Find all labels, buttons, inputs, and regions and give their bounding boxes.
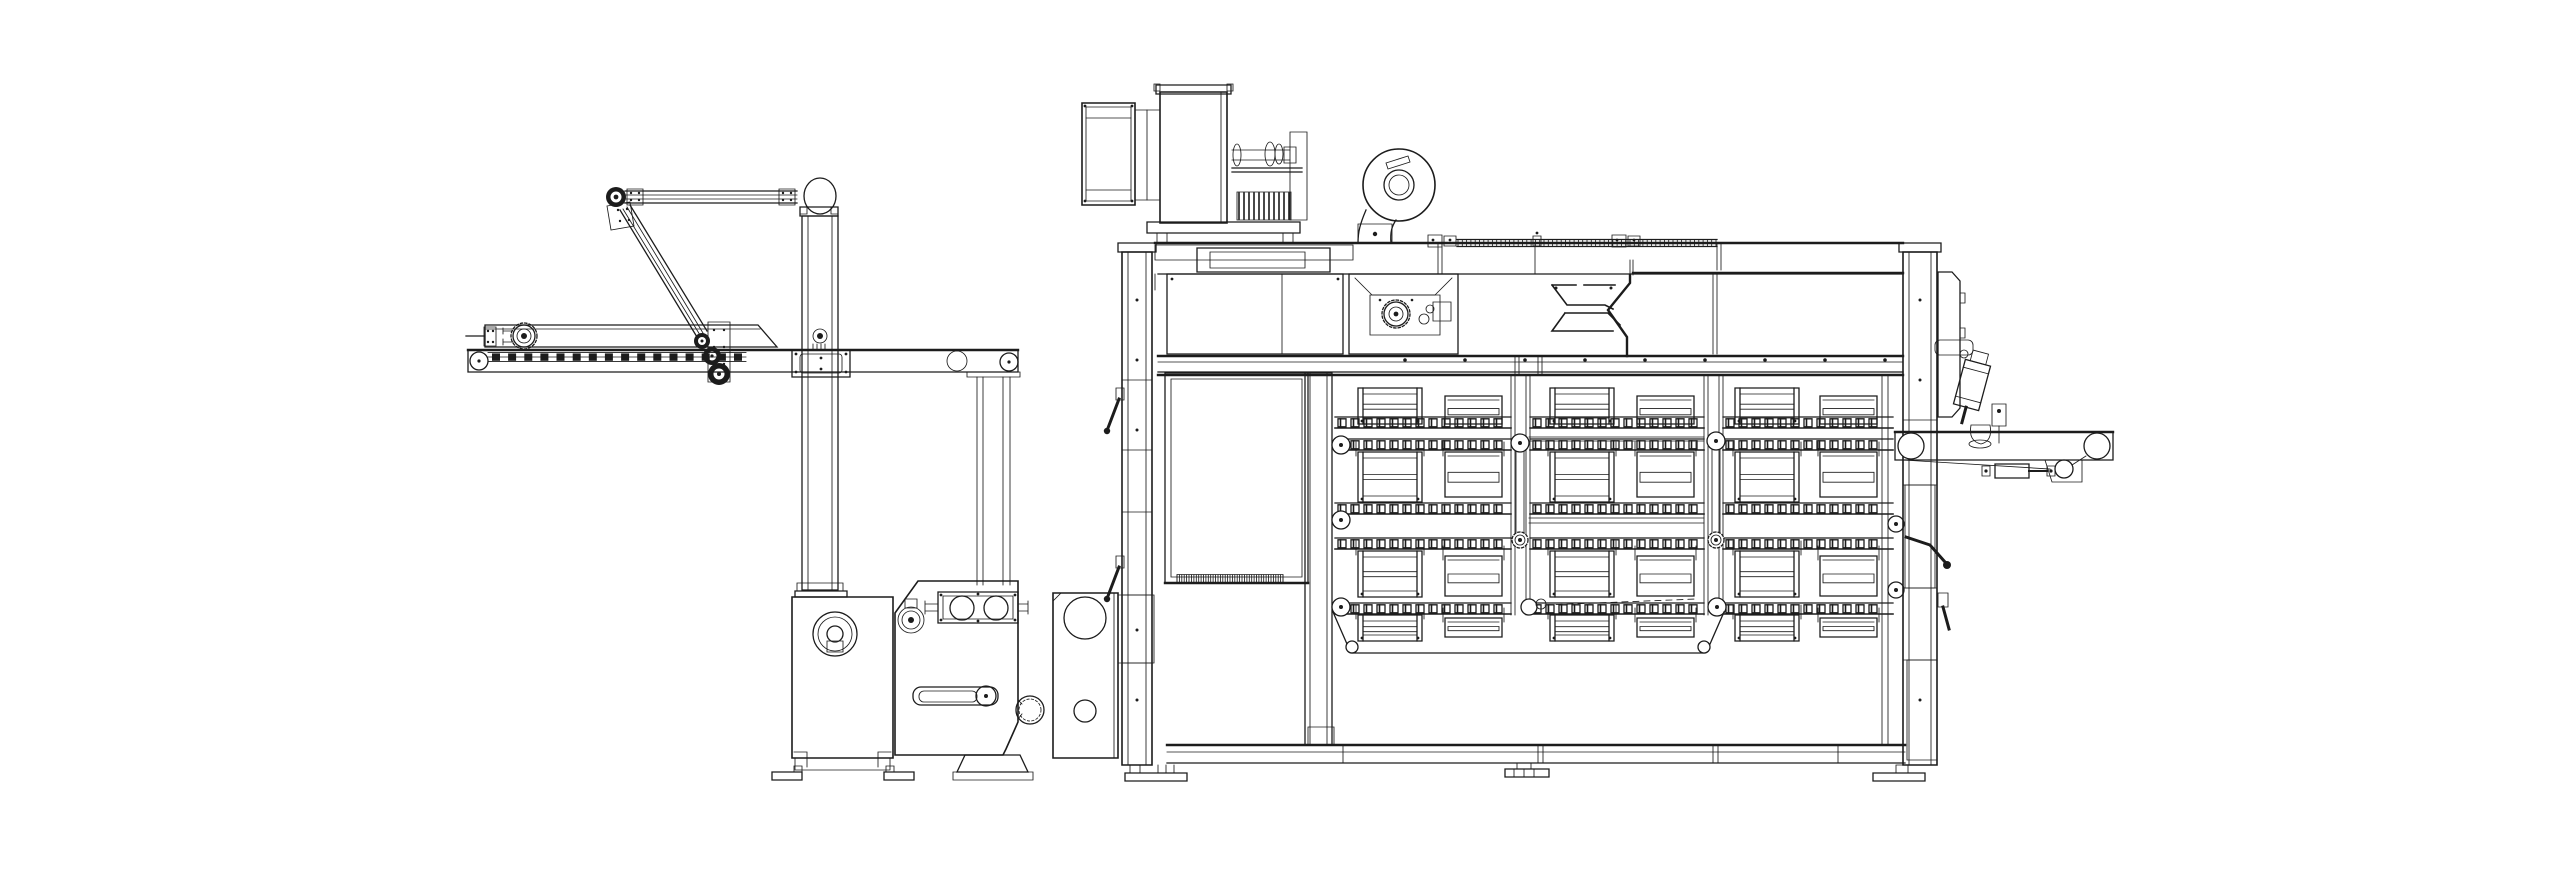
proximity-sensor: [1992, 404, 2006, 443]
tray-rack: [1332, 375, 1904, 745]
gearmotor-bay: [1349, 274, 1458, 354]
press-cylinder: [1949, 349, 1993, 426]
side-panel: [1938, 272, 1960, 417]
outfeed-unit: [1895, 272, 2113, 482]
tray-proofer-cabinet: [1082, 84, 1951, 781]
low-pan-tray: [1445, 556, 1502, 596]
end-plate: [1290, 132, 1307, 220]
drawing-canvas: Monochrome technical line drawing (side …: [0, 0, 2560, 881]
drive-shaft-assembly: [1232, 142, 1302, 172]
clamp-lever: [1906, 537, 1951, 569]
infeed-elevator-unit: [466, 178, 1118, 780]
upper-chamber: [1167, 274, 1343, 354]
leveling-foot: [1125, 773, 1187, 781]
gearbox-cabinet: [895, 581, 1044, 780]
tall-rack-tray: [1358, 551, 1422, 597]
rack-post: [1511, 375, 1530, 615]
tall-rack-tray: [1550, 615, 1614, 641]
column-base-flange: [795, 591, 847, 597]
fan-vane: [1386, 156, 1410, 169]
leveling-foot: [1873, 773, 1925, 781]
cylinder-bracket: [1935, 340, 1973, 355]
leveling-foot: [1505, 769, 1549, 777]
chain-bars: [1516, 437, 1720, 605]
leveling-foot: [884, 772, 914, 780]
plate-bore: [1074, 700, 1096, 722]
door-latch-lever: [1104, 388, 1124, 434]
conveyor-beam: [468, 350, 1018, 372]
conveyor-hood: [485, 325, 777, 347]
tall-rack-tray: [1550, 551, 1614, 597]
right-wall: [1873, 243, 1951, 781]
sprocket-bracket: [484, 327, 496, 346]
filter-flange: [1135, 110, 1160, 200]
blower-housing: [1160, 92, 1227, 223]
tall-rack-tray: [1358, 615, 1422, 641]
tall-rack-tray: [1735, 551, 1799, 597]
tall-rack-tray: [1358, 452, 1422, 502]
inner-column: [1305, 373, 1334, 745]
upper-chambers: [1155, 274, 1717, 356]
belt-roller: [2084, 433, 2110, 459]
low-pan-tray: [1637, 556, 1694, 596]
idler-roller: [947, 351, 967, 371]
duct-port: [1016, 696, 1044, 724]
low-pan-tray: [1637, 618, 1694, 637]
leveling-foot: [772, 772, 802, 780]
beam-bolts: [1403, 358, 1887, 362]
chain-sprockets: [1332, 432, 1904, 616]
outfeed-conveyor: [1895, 432, 2113, 482]
low-pan-tray: [1820, 618, 1877, 637]
support-column: [792, 178, 850, 597]
tall-rack-tray: [1735, 615, 1799, 641]
rack-post: [1882, 375, 1888, 745]
infeed-conveyor: [466, 323, 1020, 585]
left-wall: [1104, 243, 1187, 781]
roof-equipment: [1082, 84, 1435, 243]
tall-rack-tray: [1550, 452, 1614, 502]
motor-boss: [813, 612, 857, 656]
conveyor-legs: [977, 377, 1010, 585]
low-pan-tray: [1445, 618, 1502, 637]
low-pan-tray: [1445, 452, 1502, 497]
roof-rail: [1155, 232, 1903, 275]
suction-pad: [1969, 425, 1991, 448]
plate-bore: [1064, 597, 1106, 639]
support-beam: [1158, 356, 1903, 375]
distribution-funnel: [1552, 275, 1630, 356]
chain-slat-belt: [488, 353, 746, 362]
wall-bracket-plate: [1053, 593, 1118, 758]
low-pan-tray: [1820, 556, 1877, 596]
door-vent-strip: [1177, 575, 1283, 583]
drive-cabinet: [772, 597, 914, 780]
centrifugal-fan: [1358, 149, 1435, 243]
tension-cylinder: [1982, 464, 2055, 478]
latch-lever: [1938, 593, 1949, 629]
belt-roller: [1898, 433, 1924, 459]
base-frame: [1167, 745, 1905, 777]
gearmotor: [1355, 278, 1452, 335]
wall-cap: [1899, 243, 1941, 252]
service-door: [1165, 373, 1308, 583]
pedestal: [957, 755, 1028, 772]
low-pan-tray: [1820, 452, 1877, 497]
technical-drawing: Monochrome technical line drawing (side …: [0, 0, 2560, 881]
cooling-fins: [1237, 192, 1291, 220]
transfer-arm: [606, 187, 797, 230]
flange-bolts: [630, 192, 792, 201]
tall-rack-tray: [1735, 452, 1799, 502]
low-pan-tray: [1637, 452, 1694, 497]
roller: [984, 596, 1008, 620]
roller: [950, 596, 974, 620]
wall-cap: [1118, 243, 1156, 252]
tension-roller: [2055, 460, 2073, 478]
